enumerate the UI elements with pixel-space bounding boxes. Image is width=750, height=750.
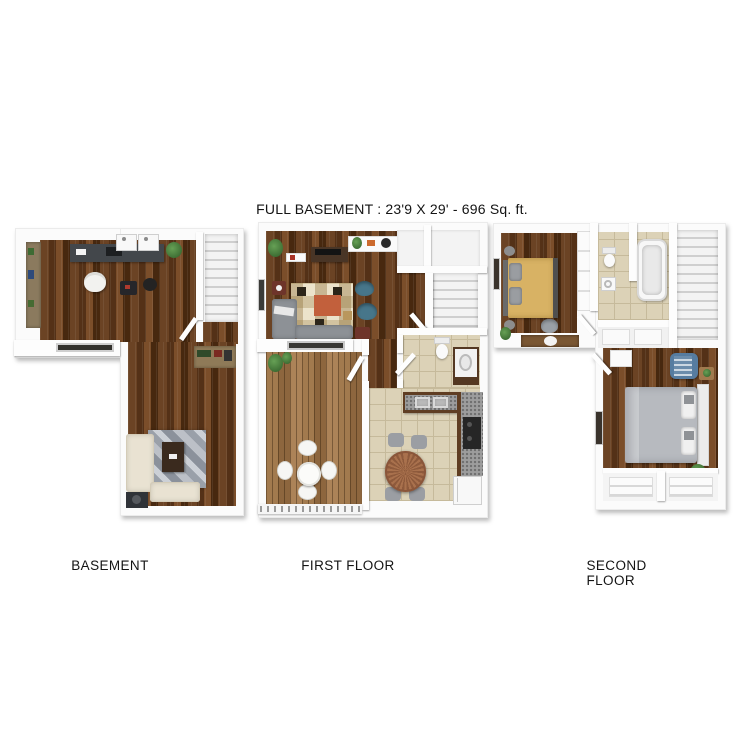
living-window: [258, 279, 265, 311]
shelf-plants-icon: [197, 350, 211, 357]
closet-divider-wall: [657, 471, 665, 501]
basement-stairs: [205, 234, 238, 322]
washer-dial-icon: [122, 237, 126, 241]
bedroom2-window: [595, 411, 603, 445]
railing-balusters: [260, 506, 360, 512]
ottoman-accent: [125, 285, 130, 289]
bed2-pillow-top-accent: [684, 395, 694, 404]
landing-wall: [424, 225, 431, 268]
patio-table: [297, 462, 321, 486]
second-floor-label: SECOND FLOOR: [587, 558, 696, 588]
bedroom1-window: [493, 258, 500, 290]
basement-sofa-horizontal: [150, 482, 200, 502]
living-plant-icon: [268, 239, 283, 257]
teal-armchair-2: [357, 303, 377, 320]
patio-chair-north: [298, 440, 317, 456]
hall-closet-left: [602, 329, 630, 345]
bathroom-wall-upper: [397, 335, 403, 353]
vanity-sink-icon: [459, 354, 472, 371]
fireplace-window: [287, 341, 345, 350]
floor-plan-sheet: FULL BASEMENT : 23'9 X 29' - 696 Sq. ft.: [0, 0, 750, 750]
deck-plant2-icon: [282, 352, 292, 364]
bathtub-basin: [642, 245, 662, 295]
patio-chair-east: [321, 461, 337, 480]
bed2-pillow-bottom-accent: [684, 431, 694, 440]
bed2-blanket-fold: [625, 387, 639, 463]
patio-chair-west: [277, 461, 293, 480]
console-wheel-decor-icon: [381, 238, 391, 248]
bathroom-wall-lower: [397, 379, 403, 388]
deck-plant-icon: [268, 354, 283, 372]
console-orange-decor: [367, 240, 375, 246]
shelf-box: [224, 350, 232, 361]
hall-closet-right: [634, 329, 662, 345]
office-plant-icon: [166, 242, 182, 258]
side-table-2: [355, 327, 370, 339]
bookshelf-books: [28, 270, 34, 279]
rug-tan-square: [343, 311, 352, 320]
first-floor-label: FIRST FLOOR: [301, 558, 394, 573]
stair-side-wall: [425, 273, 433, 328]
rug-dark-square: [297, 287, 306, 296]
niche-chair-icon: [544, 336, 557, 346]
bedroom1-bath-wall: [590, 223, 598, 311]
stair-closet-top-wall: [397, 266, 487, 273]
bedroom2-dresser: [610, 350, 632, 367]
toilet2-bowl: [604, 254, 615, 267]
bedroom1-chair: [541, 319, 558, 333]
dining-chair-2: [411, 435, 427, 449]
office-stool: [143, 278, 157, 291]
teal-armchair-1: [355, 281, 374, 296]
deck-wall-lower: [362, 381, 369, 510]
tv-screen: [315, 249, 341, 255]
dining-chair-1: [388, 433, 404, 447]
upper-landing: [397, 230, 480, 268]
dryer: [138, 234, 159, 251]
nightstand1-icon: [504, 246, 515, 256]
stove-burner-icon: [467, 422, 472, 427]
basement-label: BASEMENT: [71, 558, 148, 573]
gray-sofa-horizontal: [295, 325, 353, 339]
living-coffee-table: [314, 295, 341, 316]
bookshelf-plant2-icon: [28, 300, 34, 307]
kitchen-sink-left: [415, 397, 430, 408]
living-side-shelf: [286, 253, 306, 262]
first-floor-plan: [257, 221, 489, 519]
bedroom1-plant-icon: [500, 327, 511, 340]
basement-plan: [14, 226, 246, 518]
first-floor-stairs: [433, 273, 478, 328]
closet-left-shelves: [609, 477, 653, 497]
blue-armchair-cushion: [674, 356, 692, 376]
bed1-footboard: [553, 258, 558, 318]
basement-window: [56, 343, 114, 352]
shelf-red-book: [290, 255, 295, 260]
bed1-pillow-top: [509, 263, 522, 281]
toilet-bowl: [436, 344, 448, 359]
bathroom2-partition: [629, 223, 637, 281]
desk-papers: [76, 249, 86, 255]
dryer-dial-icon: [144, 237, 148, 241]
hallway-floor: [368, 339, 397, 388]
nightstand-plant-icon: [703, 369, 711, 377]
bath2-sink-bowl-icon: [604, 280, 612, 288]
kitchen-sink-right: [433, 397, 448, 408]
stairwell-wall: [669, 223, 677, 348]
bathroom2-south-wall: [598, 320, 669, 327]
side-table-cup-icon: [276, 285, 282, 291]
bookshelf-plant-icon: [28, 248, 34, 255]
stove-burner2-icon: [467, 436, 472, 441]
basement-stair-wall: [196, 232, 203, 320]
coffee-table-remote: [169, 454, 177, 459]
refrigerator-handle: [457, 478, 458, 502]
second-floor-plan: [491, 221, 728, 512]
deck-wall-upper: [362, 339, 369, 355]
closet-right-shelves: [669, 477, 713, 497]
bed1-pillow-bottom: [509, 287, 522, 305]
console-plant-icon: [352, 237, 362, 249]
toilet-tank: [434, 337, 450, 344]
page-title: FULL BASEMENT : 23'9 X 29' - 696 Sq. ft.: [34, 201, 750, 217]
patio-chair-south: [298, 484, 317, 500]
basement-stair-landing-floor: [203, 322, 238, 344]
speaker-cone-icon: [132, 495, 141, 504]
washer: [116, 234, 137, 251]
office-chair: [84, 272, 106, 292]
dining-table: [385, 451, 426, 492]
bed2-headboard: [697, 384, 709, 466]
second-floor-stairs: [677, 230, 718, 340]
kitchen-stove: [463, 417, 481, 449]
bedroom1-closet: [577, 231, 591, 311]
toilet2-tank: [602, 247, 616, 254]
bathroom-top-wall: [397, 328, 487, 335]
shelf-books: [214, 350, 222, 357]
